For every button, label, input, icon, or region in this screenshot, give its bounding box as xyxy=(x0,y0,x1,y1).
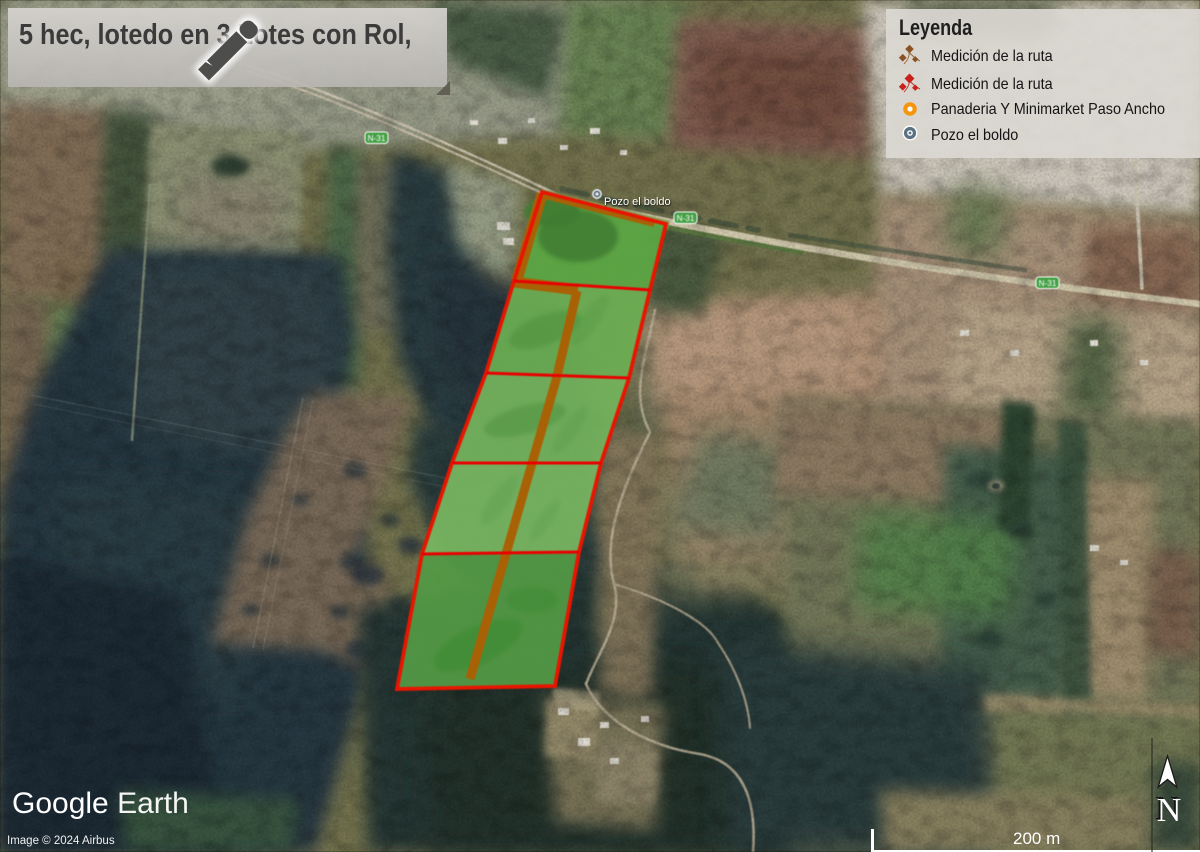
svg-text:N-31: N-31 xyxy=(368,134,386,143)
svg-text:N-31: N-31 xyxy=(1039,279,1057,288)
svg-text:N: N xyxy=(1157,792,1182,829)
svg-text:N-31: N-31 xyxy=(677,214,695,223)
